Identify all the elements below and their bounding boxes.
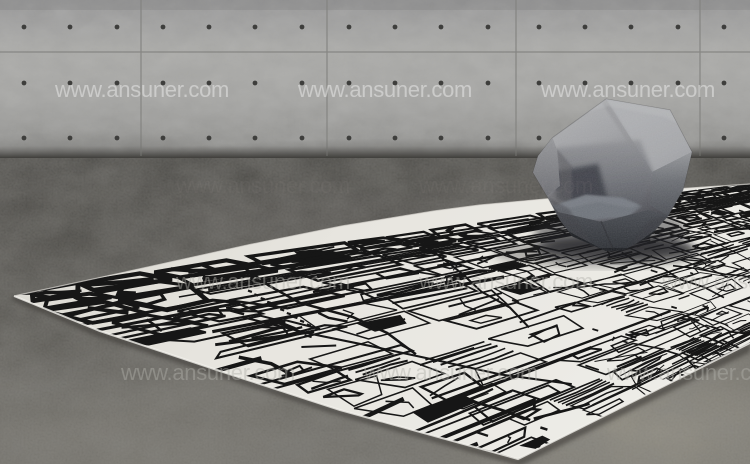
svg-text:www.ansuner.com: www.ansuner.com (120, 360, 295, 385)
svg-text:www.ansuner.com: www.ansuner.com (175, 173, 350, 198)
svg-text:www.ansuner.com: www.ansuner.com (606, 360, 750, 385)
svg-text:www.ansuner.com: www.ansuner.com (418, 173, 593, 198)
svg-text:www.ansuner.com: www.ansuner.com (297, 77, 472, 102)
svg-text:www.ansuner.com: www.ansuner.com (54, 77, 229, 102)
svg-text:www.ansuner.com: www.ansuner.com (363, 360, 538, 385)
svg-text:www.ansuner.com: www.ansuner.com (418, 269, 593, 294)
svg-text:www.ansuner.com: www.ansuner.com (175, 269, 350, 294)
svg-text:www.ansuner.com: www.ansuner.com (540, 77, 715, 102)
svg-text:www.ansuner.com: www.ansuner.com (661, 269, 750, 294)
